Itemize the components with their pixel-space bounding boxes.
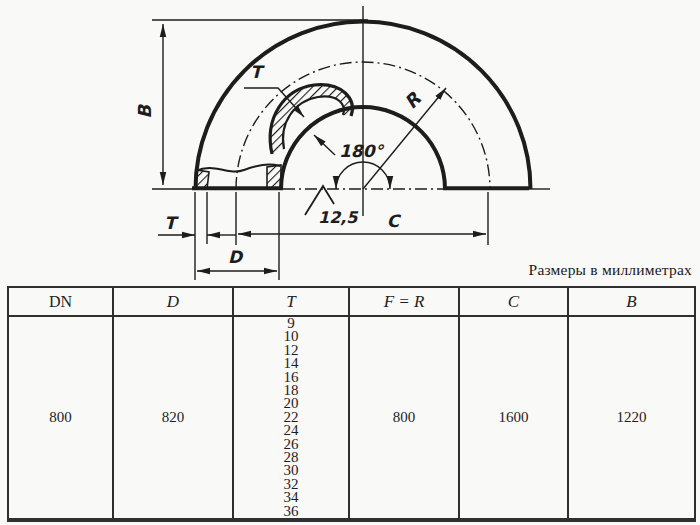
label-t-wall: T bbox=[164, 213, 179, 233]
label-t-section: T bbox=[250, 62, 265, 82]
c-dimension: C bbox=[236, 192, 488, 245]
cell-b: 1220 bbox=[568, 316, 695, 519]
page: B T 180° R 12,5 C bbox=[0, 0, 700, 525]
header-f-r: F = R bbox=[349, 287, 459, 316]
label-angle: 180° bbox=[339, 141, 384, 161]
table-header-row: DN D T F = R C B bbox=[8, 287, 695, 316]
header-d: D bbox=[113, 287, 233, 316]
label-roughness: 12,5 bbox=[318, 208, 359, 227]
label-d: D bbox=[228, 247, 244, 267]
t-wall-dimension: T bbox=[158, 192, 236, 244]
cell-dn: 800 bbox=[8, 316, 113, 519]
cell-d: 820 bbox=[113, 316, 233, 519]
roughness-mark: 12,5 bbox=[305, 186, 359, 227]
table-row: 800 820 9 10 12 14 16 18 20 22 24 26 28 … bbox=[8, 316, 695, 519]
cell-f-r: 800 bbox=[349, 316, 459, 519]
b-dimension: B bbox=[134, 24, 163, 185]
cell-c: 1600 bbox=[459, 316, 568, 519]
r-dimension: R bbox=[363, 87, 446, 189]
left-end-section bbox=[195, 165, 281, 189]
header-b: B bbox=[568, 287, 695, 316]
units-note: Размеры в миллиметрах bbox=[529, 261, 692, 279]
header-t: T bbox=[233, 287, 349, 316]
label-b: B bbox=[134, 104, 155, 119]
cell-t-values: 9 10 12 14 16 18 20 22 24 26 28 30 32 34… bbox=[233, 316, 349, 519]
wall-cut-left bbox=[195, 170, 209, 189]
header-dn: DN bbox=[8, 287, 113, 316]
technical-drawing: B T 180° R 12,5 C bbox=[0, 0, 700, 285]
thickness-arrow bbox=[314, 135, 335, 155]
dimensions-table: DN D T F = R C B 800 820 9 10 12 14 16 1… bbox=[7, 286, 696, 520]
label-c: C bbox=[387, 211, 402, 231]
label-r: R bbox=[400, 87, 426, 112]
wall-cut-right bbox=[267, 165, 281, 189]
header-c: C bbox=[459, 287, 568, 316]
